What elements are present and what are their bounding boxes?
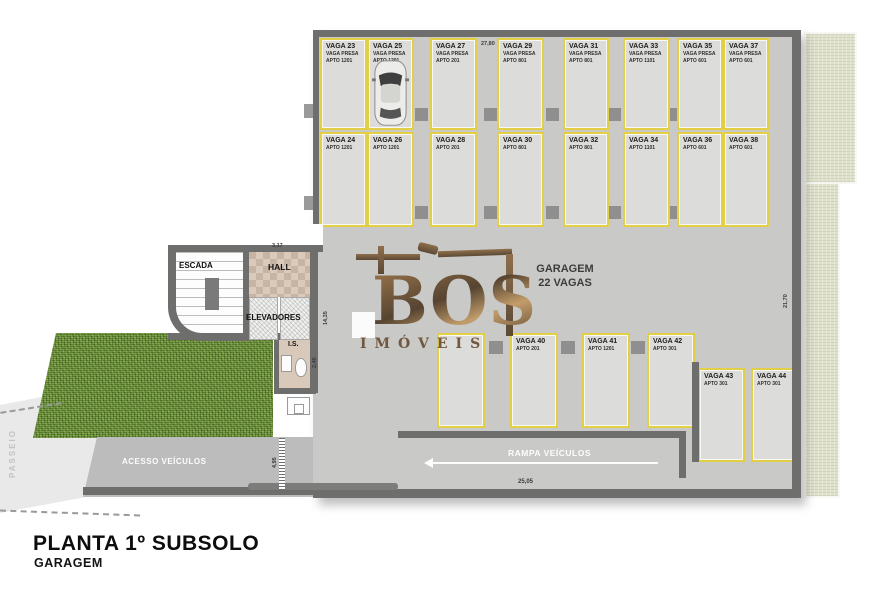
stall-apto: APTO 201 — [436, 58, 473, 65]
dimension-hall-width: 3,17 — [272, 243, 283, 249]
exterior-garden-strip-lower — [804, 182, 840, 498]
stall-apto: APTO 301 — [704, 381, 741, 388]
stall-vaga-37: VAGA 37 VAGA PRESA APTO 601 — [723, 38, 769, 130]
stall-vaga-27: VAGA 27 VAGA PRESA APTO 201 — [430, 38, 477, 130]
dimension-is-height: 2,40 — [312, 357, 318, 368]
stall-vaga-36: VAGA 36 APTO 601 — [677, 132, 723, 227]
stall-vaga-30: VAGA 30 APTO 801 — [497, 132, 544, 227]
stall-label: VAGA 28 — [436, 137, 473, 145]
dimension-core-height: 14,35 — [323, 311, 329, 325]
logo-chimney-icon — [417, 242, 439, 256]
column — [415, 108, 428, 121]
property-line-bottom — [0, 510, 140, 517]
stall-sub: VAGA PRESA — [373, 51, 410, 58]
logo-brand-text: BOS — [372, 268, 537, 334]
stall-sub: VAGA PRESA — [436, 51, 473, 58]
column — [546, 206, 559, 219]
stall-vaga-24: VAGA 24 APTO 1201 — [320, 132, 367, 227]
stall-label: VAGA 36 — [683, 137, 719, 145]
stall-apto: APTO 601 — [683, 145, 719, 152]
stall-vaga-42: VAGA 42 APTO 301 — [647, 333, 695, 428]
wall-bottom — [313, 489, 801, 498]
stall-sub: VAGA PRESA — [629, 51, 666, 58]
passeio-label: PASSEIO — [8, 429, 17, 478]
stall-label: VAGA 31 — [569, 43, 605, 51]
toilet-fixture — [295, 358, 307, 377]
stall-apto: APTO 601 — [729, 58, 765, 65]
wall-recess-4344 — [692, 362, 699, 462]
room-label-elevadores: ELEVADORES — [246, 313, 301, 322]
room-label-is: I.S. — [288, 341, 299, 348]
column — [546, 108, 559, 121]
room-label-escada: ESCADA — [179, 261, 213, 270]
logo-roofline-icon — [356, 254, 420, 260]
ramp-top-wall — [398, 431, 685, 438]
column — [484, 108, 497, 121]
stall-vaga-32: VAGA 32 APTO 801 — [563, 132, 609, 227]
wall-right — [792, 30, 801, 498]
dimension-ticks — [279, 438, 285, 490]
stall-label: VAGA 33 — [629, 43, 666, 51]
stall-label: VAGA 23 — [326, 43, 363, 51]
grass-area — [33, 333, 273, 438]
ramp-arrow-line — [432, 462, 658, 464]
stall-sub: VAGA PRESA — [683, 51, 719, 58]
exterior-garden-strip-upper — [804, 32, 857, 184]
stall-vaga-35: VAGA 35 VAGA PRESA APTO 601 — [677, 38, 723, 130]
room-label-hall: HALL — [268, 262, 291, 272]
dimension-access-height: 4,95 — [272, 457, 278, 468]
dimension-top-span: 27,80 — [481, 41, 495, 47]
stall-apto: APTO 1201 — [373, 145, 410, 152]
column — [608, 108, 621, 121]
page-subtitle: GARAGEM — [34, 556, 103, 570]
stall-label: VAGA 35 — [683, 43, 719, 51]
wall-core-right — [310, 250, 318, 342]
stall-label: VAGA 44 — [757, 373, 794, 381]
ramp-right-wall — [679, 431, 686, 478]
stall-label: VAGA 34 — [629, 137, 666, 145]
stall-vaga-25: VAGA 25 VAGA PRESA APTO 1201 — [367, 38, 414, 130]
dimension-ramp-width: 25,05 — [518, 479, 533, 485]
stair-flight-divider — [205, 278, 219, 310]
stall-apto: APTO 1201 — [326, 58, 363, 65]
column — [415, 206, 428, 219]
sink-fixture — [281, 355, 292, 372]
stall-sub: VAGA PRESA — [729, 51, 765, 58]
logo-watermark: BOS IMÓVEIS — [350, 238, 525, 363]
car-icon — [371, 58, 410, 128]
logo-sub-text: IMÓVEIS — [360, 336, 488, 352]
stall-apto: APTO 801 — [569, 145, 605, 152]
stall-apto: APTO 1201 — [326, 145, 363, 152]
stall-sub: VAGA PRESA — [503, 51, 540, 58]
stall-label: VAGA 32 — [569, 137, 605, 145]
driveway-bump — [248, 483, 398, 490]
stall-apto: APTO 301 — [757, 381, 794, 388]
stall-vaga-41: VAGA 41 APTO 1201 — [582, 333, 630, 428]
hall-room — [249, 252, 310, 297]
floor-plan-canvas: VAGA 23 VAGA PRESA APTO 1201 VAGA 25 VAG… — [0, 0, 870, 613]
stall-label: VAGA 42 — [653, 338, 691, 346]
wall-is-bottom — [274, 388, 316, 394]
rampa-veiculos-label: RAMPA VEÍCULOS — [508, 448, 591, 458]
column — [631, 341, 645, 354]
stall-apto: APTO 601 — [729, 145, 765, 152]
stall-apto: APTO 1101 — [629, 58, 666, 65]
stall-sub: VAGA PRESA — [569, 51, 605, 58]
dimension-right-span: 21,70 — [783, 294, 789, 308]
stall-label: VAGA 37 — [729, 43, 765, 51]
stall-apto: APTO 801 — [503, 58, 540, 65]
stall-label: VAGA 26 — [373, 137, 410, 145]
stall-apto: APTO 1101 — [629, 145, 666, 152]
stall-apto: APTO 801 — [503, 145, 540, 152]
stall-vaga-43: VAGA 43 APTO 301 — [698, 368, 745, 462]
stall-label: VAGA 25 — [373, 43, 410, 51]
page-title: PLANTA 1º SUBSOLO — [33, 532, 259, 556]
stall-apto: APTO 601 — [683, 58, 719, 65]
wall-left-upper — [313, 30, 319, 226]
stall-vaga-26: VAGA 26 APTO 1201 — [367, 132, 414, 227]
logo-roofline-icon — [438, 249, 512, 258]
stall-vaga-33: VAGA 33 VAGA PRESA APTO 1101 — [623, 38, 670, 130]
stall-vaga-28: VAGA 28 APTO 201 — [430, 132, 477, 227]
stall-vaga-29: VAGA 29 VAGA PRESA APTO 801 — [497, 38, 544, 130]
stall-apto: APTO 801 — [569, 58, 605, 65]
stall-vaga-38: VAGA 38 APTO 601 — [723, 132, 769, 227]
stall-label: VAGA 27 — [436, 43, 473, 51]
stall-vaga-23: VAGA 23 VAGA PRESA APTO 1201 — [320, 38, 367, 130]
stall-label: VAGA 43 — [704, 373, 741, 381]
column — [608, 206, 621, 219]
acesso-veiculos-label: ACESSO VEÍCULOS — [122, 457, 206, 466]
column — [484, 206, 497, 219]
stall-apto: APTO 201 — [436, 145, 473, 152]
stall-label: VAGA 29 — [503, 43, 540, 51]
stall-vaga-31: VAGA 31 VAGA PRESA APTO 801 — [563, 38, 609, 130]
stall-label: VAGA 24 — [326, 137, 363, 145]
stall-vaga-34: VAGA 34 APTO 1101 — [623, 132, 670, 227]
stall-apto: APTO 1201 — [588, 346, 626, 353]
stall-label: VAGA 38 — [729, 137, 765, 145]
column — [561, 341, 575, 354]
stall-label: VAGA 41 — [588, 338, 626, 346]
stall-apto: APTO 301 — [653, 346, 691, 353]
shaft-box-inner — [294, 404, 304, 414]
wall-top — [313, 30, 800, 37]
stall-vaga-44: VAGA 44 APTO 301 — [751, 368, 798, 462]
ramp-arrow-head — [424, 458, 433, 468]
stall-label: VAGA 30 — [503, 137, 540, 145]
stall-sub: VAGA PRESA — [326, 51, 363, 58]
